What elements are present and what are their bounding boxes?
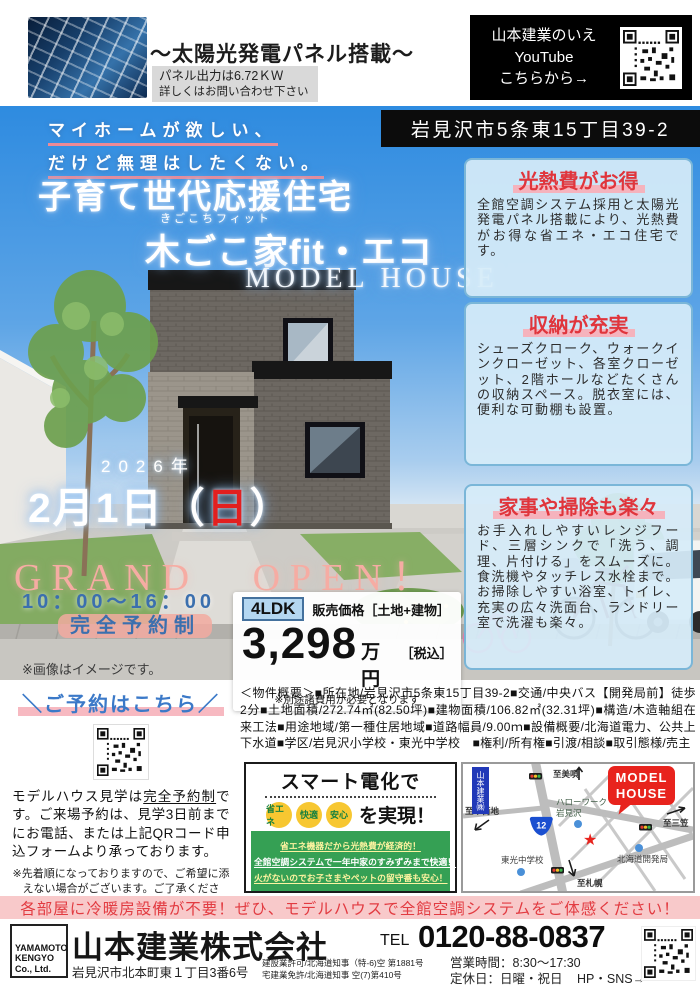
property-overview: ＜物件概要＞■所在地/岩見沢市5条東15丁目39-2■交通/中央バス【開発局前】… (240, 685, 696, 752)
solar-contact-text: 詳しくはお問い合わせ下さい (159, 85, 311, 99)
youtube-qr-code[interactable] (620, 27, 682, 89)
reservation-title: ＼ご予約はこちら／ (12, 688, 230, 717)
map-dot-bureau (635, 844, 643, 852)
smart-electrification-box: スマート電化で 省エネ 快適 安心 を実現！ 省エネ機器だから光熱費が経済的！ … (244, 762, 457, 893)
layout-badge: 4LDK (242, 597, 304, 621)
access-map: 至美唄 至市街地 至三笠 至札幌 ハローワーク 岩見沢 東光中学校 北海道開発局 (461, 762, 695, 893)
bottom-banner: 各部屋に冷暖房設備が不要！ぜひ、モデルハウスで全館空調システムをご体感ください！ (0, 896, 700, 919)
smart-benefit-3: 火がないのでお子さまやペットの留守番も安心！ (254, 871, 447, 884)
tel-label: TEL (380, 932, 409, 950)
feature-title: 光熱費がお得 (477, 165, 680, 194)
traffic-light-icon (529, 773, 542, 780)
map-dest-south: 至札幌 (577, 878, 603, 888)
open-day: 日 (207, 485, 250, 531)
feature-panel-housework: 家事や掃除も楽々 お手入れしやすいレンジフード、三層シンクで「洗う、調理、片付け… (464, 484, 693, 670)
overview-heading: ＜物件概要＞ (240, 686, 315, 700)
map-poi-school: 東光中学校 (501, 855, 544, 865)
map-dot-hellowork (574, 820, 582, 828)
company-logo: YAMAMOTO KENGYO Co., Ltd. (10, 924, 68, 978)
reservation-block: ＼ご予約はこちら／ モデルハウス見学は完全予約制です。ご来場予約は、見学3日前ま… (12, 688, 230, 912)
traffic-light-icon (639, 824, 652, 831)
sns-label: HP・SNS→ (577, 968, 645, 987)
solar-output-text: パネル出力は6.72ＫＷ (159, 69, 311, 85)
map-dot-school (517, 868, 525, 876)
image-disclaimer: ※画像はイメージです。 (22, 659, 161, 678)
reservation-only-label: 完全予約制 (58, 609, 212, 638)
comfort-badge: 快適 (296, 802, 322, 828)
model-house-title: MODEL HOUSE (245, 263, 499, 295)
traffic-light-icon (551, 867, 564, 874)
map-poi-hellowork-line1: ハローワーク (556, 797, 607, 807)
feature-panel-utility: 光熱費がお得 全館空調システム採用と太陽光発電パネル搭載により、光熱費がお得な省… (464, 158, 693, 298)
svg-text:12: 12 (536, 820, 546, 830)
map-poi-hellowork-line2: 岩見沢 (556, 808, 582, 818)
holiday-info: 定休日：日曜・祝日 (450, 968, 563, 987)
model-house-bubble: MODEL HOUSE (608, 766, 675, 805)
price-tax-note: ［税込］ (401, 643, 452, 662)
feature-title: 家事や掃除も楽々 (477, 491, 680, 520)
open-date: 2月1日（日） (28, 474, 293, 534)
license-numbers: 建設業許可/北海道知事（特-6)空 第1881号 宅建業免許/北海道知事 空(7… (262, 958, 424, 982)
smart-benefits: 省エネ機器だから光熱費が経済的！ 全館空調システムで一年中家のすみずみまで快適！… (251, 831, 450, 891)
eco-badge: 省エネ (266, 802, 292, 828)
flyer-page: ～太陽光発電パネル搭載～ パネル出力は6.72ＫＷ 詳しくはお問い合わせ下さい … (0, 0, 700, 990)
smart-suffix: を実現！ (359, 801, 435, 828)
company-address: 岩見沢市北本町東１丁目3番6号 (72, 962, 248, 981)
solar-title: ～太陽光発電パネル搭載～ (150, 38, 414, 68)
reservation-body: モデルハウス見学は完全予約制です。ご来場予約は、見学3日前までにお電話、または上… (12, 788, 230, 861)
map-dest-east: 至三笠 (663, 818, 689, 828)
reservation-qr-code[interactable] (93, 724, 149, 780)
company-sign: 山本建業㈱ (472, 767, 489, 814)
feature-body: 全館空調システム採用と太陽光発電パネル搭載により、光熱費がお得な省エネ・エコ住宅… (477, 197, 680, 258)
footer-qr-code[interactable] (641, 926, 696, 981)
smart-benefit-2: 全館空調システムで一年中家のすみずみまで快適！ (254, 855, 447, 868)
feature-body: シューズクローク、ウォークインクローゼット、各室クローゼット、2階ホールなどたく… (477, 341, 680, 418)
phone-number[interactable]: 0120-88-0837 (418, 919, 605, 955)
youtube-text: 山本建業のいえ YouTube こちらから→ (480, 25, 608, 90)
house-photo-area: 岩見沢市5条東15丁目39-2 マイホームが欲しい、 だけど無理はしたくない。 … (0, 106, 700, 680)
smart-title: スマート電化で (265, 767, 436, 798)
smart-benefit-1: 省エネ機器だから光熱費が経済的！ (254, 839, 447, 852)
price-label: 販売価格［土地+建物］ (312, 600, 450, 619)
safety-badge: 安心 (326, 802, 352, 828)
feature-title: 収納が充実 (477, 309, 680, 338)
address-banner: 岩見沢市5条東15丁目39-2 (381, 110, 700, 147)
map-poi-bureau: 北海道開発局 (617, 854, 668, 864)
price-unit: 万円 (361, 637, 399, 691)
price-amount: 3,298 (242, 622, 357, 666)
map-dest-north: 至美唄 (553, 769, 579, 779)
feature-body: お手入れしやすいレンジフード、三層シンクで「洗う、調理、片付ける」をスムーズに。… (477, 523, 680, 630)
star-icon: ★ (583, 830, 597, 850)
feature-panel-storage: 収納が充実 シューズクローク、ウォークインクローゼット、各室クローゼット、2階ホ… (464, 302, 693, 466)
solar-panel-image (28, 17, 147, 98)
solar-note-box: パネル出力は6.72ＫＷ 詳しくはお問い合わせ下さい (152, 66, 318, 102)
youtube-banner[interactable]: 山本建業のいえ YouTube こちらから→ (470, 15, 692, 100)
catch-line-1: マイホームが欲しい、 (48, 116, 278, 146)
